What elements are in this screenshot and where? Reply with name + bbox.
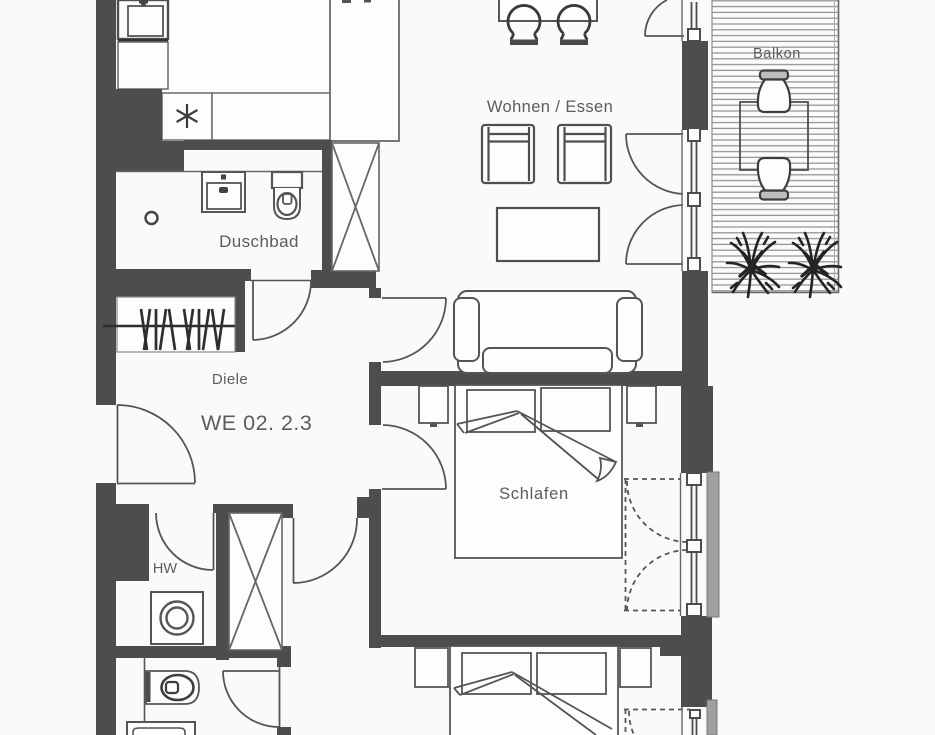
svg-text:Diele: Diele [212, 371, 248, 388]
svg-text:HW: HW [153, 561, 177, 577]
svg-text:Schlafen: Schlafen [499, 485, 569, 503]
svg-text:Wohnen / Essen: Wohnen / Essen [487, 98, 613, 116]
svg-text:Duschbad: Duschbad [219, 232, 299, 251]
svg-text:Balkon: Balkon [753, 46, 801, 62]
svg-text:WE 02. 2.3: WE 02. 2.3 [201, 411, 312, 435]
